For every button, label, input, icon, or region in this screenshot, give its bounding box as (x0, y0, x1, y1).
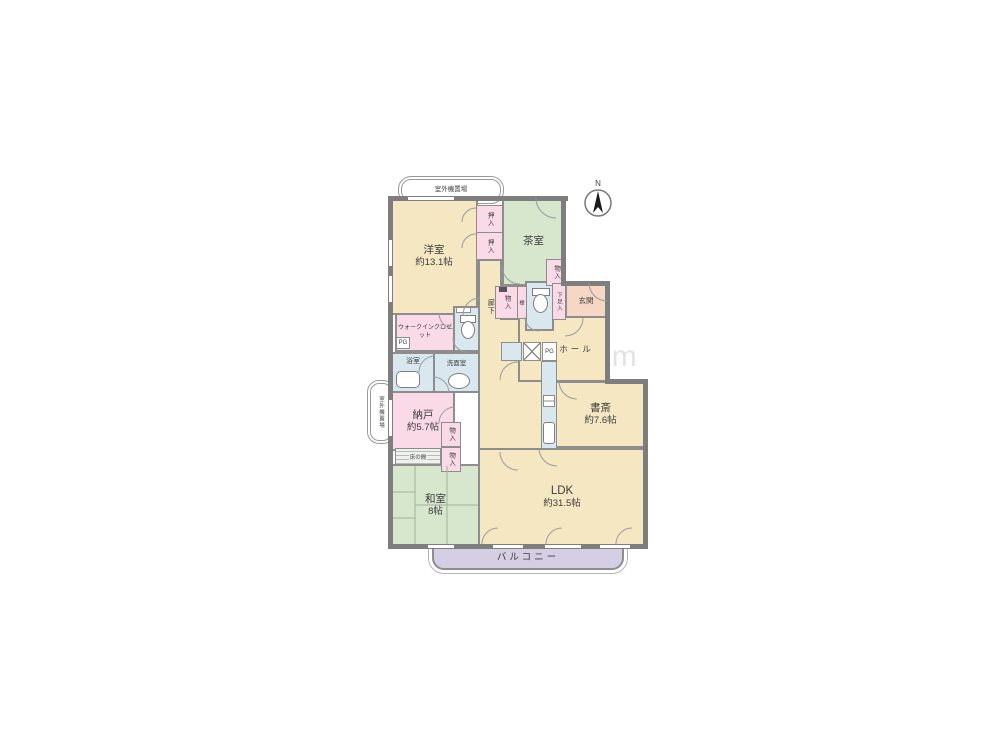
room-hall-name: ホール (559, 344, 594, 355)
shaft-x-icon (523, 342, 541, 361)
wall-segment (643, 379, 648, 549)
pipe-space-pg-1: PG (396, 337, 410, 349)
window (408, 196, 454, 201)
closet-oshiire-2: 押入 (476, 232, 503, 260)
sink-icon (543, 422, 555, 444)
closet-monoire-hall-label: 物入 (503, 295, 510, 310)
window (388, 276, 393, 302)
room-shosai-name: 書斎 (590, 402, 611, 415)
window (545, 544, 581, 549)
wall-segment (561, 196, 566, 286)
bathtub-icon (396, 371, 420, 388)
balcony-label: バルコニー (497, 552, 559, 564)
window (388, 240, 393, 266)
tokonoma-label: 床の間 (409, 453, 428, 461)
room-washitsu-name: 和室 (425, 493, 446, 506)
closet-oshiire-1: 押入 (476, 205, 503, 233)
closet-monoire-tea-label: 物入 (552, 265, 559, 280)
cabinet (501, 342, 522, 361)
closet-monoire-nando-2-label: 物入 (447, 452, 454, 467)
compass-north-label: N (595, 179, 601, 188)
shelf-tana-label: 棚 (519, 300, 526, 306)
outdoor-unit-left-label: 室外機置場 (377, 396, 385, 429)
room-shosai-size: 約7.6帖 (584, 415, 616, 427)
room-washitsu-size: 8帖 (428, 506, 443, 518)
room-washitsu: 和室 8帖 (391, 464, 480, 546)
stove-icon (543, 395, 555, 407)
room-senmenshitsu-name: 洗面室 (447, 360, 467, 368)
shelf-tana: 棚 (517, 286, 527, 319)
window (388, 400, 393, 436)
room-ldk-size: 約31.5帖 (543, 498, 581, 510)
toilet-icon (461, 321, 475, 339)
room-nando-size: 約5.7帖 (407, 422, 439, 434)
pg-1-label: PG (399, 340, 408, 346)
wall-segment (605, 281, 610, 384)
room-yokushitsu-name: 浴室 (406, 358, 420, 367)
room-yoshitsu-name: 洋室 (424, 244, 445, 257)
washbasin-icon (448, 373, 470, 389)
room-ldk: LDK 約31.5帖 (478, 448, 646, 546)
room-shosai: 書斎 約7.6帖 (555, 381, 646, 448)
window (493, 544, 523, 549)
room-yoshitsu-size: 約13.1帖 (415, 257, 453, 269)
room-genkan-name: 玄関 (579, 296, 594, 305)
room-yoshitsu: 洋室 約13.1帖 (390, 198, 478, 315)
room-rouka-name: 廊下 (486, 299, 495, 315)
closet-oshiire-2-label: 押入 (486, 239, 493, 254)
closet-getabako: 下足入 (552, 283, 566, 320)
balcony: バルコニー (432, 547, 624, 570)
closet-getabako-label: 下足入 (555, 292, 563, 312)
room-nando-name: 納戸 (413, 409, 434, 422)
pipe-space-pg-2: PG (542, 342, 557, 361)
pg-2-label: PG (545, 349, 554, 355)
wall-segment (561, 281, 610, 286)
outdoor-unit-top-label: 室外機置場 (435, 186, 468, 193)
floor-plan: ienakanote.com 室外機置場 室外機置場 バルコニー 洋室 約13.… (0, 0, 1000, 750)
window (428, 544, 454, 549)
closet-oshiire-1-label: 押入 (486, 212, 493, 227)
window (600, 544, 630, 549)
toilet-shelf (456, 307, 471, 313)
toilet-icon-2 (533, 294, 548, 313)
compass-icon: N (578, 176, 618, 222)
shelf-marker (499, 287, 507, 292)
wall-segment (605, 379, 648, 384)
tokonoma: 床の間 (395, 448, 441, 465)
closet-monoire-nando-1: 物入 (441, 422, 461, 447)
room-genkan: 玄関 (565, 283, 607, 318)
closet-monoire-nando-2: 物入 (441, 447, 461, 472)
closet-monoire-nando-1-label: 物入 (447, 427, 454, 442)
room-ldk-name: LDK (551, 484, 573, 498)
room-chashitsu-name: 茶室 (523, 235, 544, 248)
